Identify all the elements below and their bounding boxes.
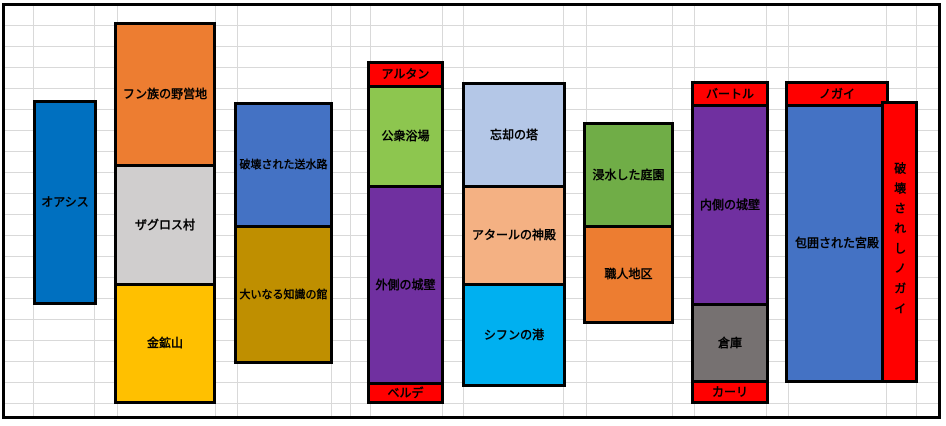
block-label-kari: カーリ: [712, 385, 748, 399]
block-label-zagros-village: ザグロス村: [135, 218, 195, 232]
block-label-gold-mine: 金鉱山: [147, 336, 183, 350]
block-label-oasis: オアシス: [41, 195, 89, 209]
block-label-temple-of-atar: アタールの神殿: [472, 228, 556, 242]
block-hun-camp[interactable]: フン族の野営地: [117, 25, 213, 164]
block-label-nogai: ノガイ: [819, 87, 855, 101]
block-label-house-of-great-knowledge: 大いなる知識の館: [240, 288, 328, 301]
block-berde[interactable]: ベルデ: [370, 382, 441, 401]
block-tower-of-oblivion[interactable]: 忘却の塔: [465, 85, 563, 185]
block-port-of-sifun[interactable]: シフンの港: [465, 283, 563, 384]
block-oasis[interactable]: オアシス: [36, 103, 94, 302]
block-label-bartol: バートル: [706, 87, 754, 101]
block-inner-wall[interactable]: 内側の城壁: [694, 104, 766, 303]
block-destroyed-aqueduct[interactable]: 破壊された送水路: [237, 105, 330, 225]
block-label-inner-wall: 内側の城壁: [700, 198, 760, 212]
block-besieged-palace[interactable]: 包囲された宮殿: [788, 104, 886, 380]
column-garden-artisan: 浸水した庭園職人地区: [583, 122, 674, 324]
block-public-baths[interactable]: 公衆浴場: [370, 85, 441, 185]
column-oasis: オアシス: [33, 100, 97, 305]
block-artisan-district[interactable]: 職人地区: [586, 225, 671, 321]
block-zagros-village[interactable]: ザグロス村: [117, 164, 213, 283]
block-label-outer-wall: 外側の城壁: [375, 278, 435, 292]
column-bartol-stack: バートル内側の城壁倉庫カーリ: [691, 81, 769, 404]
block-temple-of-atar[interactable]: アタールの神殿: [465, 185, 563, 283]
block-label-flooded-gardens: 浸水した庭園: [592, 168, 664, 182]
block-label-berde: ベルデ: [387, 386, 423, 400]
block-house-of-great-knowledge[interactable]: 大いなる知識の館: [237, 225, 330, 361]
column-aqueduct-knowledge: 破壊された送水路大いなる知識の館: [234, 102, 333, 364]
column-destroyed-nogai-strip: 破壊されしノガイ: [881, 101, 918, 383]
block-label-destroyed-aqueduct: 破壊された送水路: [240, 158, 328, 171]
block-outer-wall[interactable]: 外側の城壁: [370, 185, 441, 382]
block-label-public-baths: 公衆浴場: [381, 129, 429, 143]
block-label-altan: アルタン: [382, 67, 430, 81]
block-label-tower-of-oblivion: 忘却の塔: [490, 128, 538, 142]
spreadsheet-canvas: オアシスフン族の野営地ザグロス村金鉱山破壊された送水路大いなる知識の館アルタン公…: [0, 0, 946, 426]
block-label-port-of-sifun: シフンの港: [484, 328, 544, 342]
block-label-artisan-district: 職人地区: [604, 267, 652, 281]
block-warehouse[interactable]: 倉庫: [694, 303, 766, 380]
column-hun-zagros-goldmine: フン族の野営地ザグロス村金鉱山: [114, 22, 216, 404]
block-gold-mine[interactable]: 金鉱山: [117, 283, 213, 401]
block-label-warehouse: 倉庫: [718, 336, 742, 350]
column-tower-temple-port: 忘却の塔アタールの神殿シフンの港: [462, 82, 566, 387]
block-destroyed-nogai[interactable]: 破壊されしノガイ: [884, 104, 915, 380]
block-altan[interactable]: アルタン: [370, 64, 441, 85]
gridline-vertical: [350, 6, 351, 418]
block-label-hun-camp: フン族の野営地: [123, 87, 207, 101]
block-label-besieged-palace: 包囲された宮殿: [795, 236, 879, 250]
column-nogai-stack: ノガイ包囲された宮殿: [785, 81, 889, 383]
block-label-destroyed-nogai: 破壊されしノガイ: [892, 162, 906, 322]
column-altan-stack: アルタン公衆浴場外側の城壁ベルデ: [367, 61, 444, 404]
block-nogai[interactable]: ノガイ: [788, 84, 886, 104]
block-bartol[interactable]: バートル: [694, 84, 766, 104]
block-kari[interactable]: カーリ: [694, 380, 766, 401]
block-flooded-gardens[interactable]: 浸水した庭園: [586, 125, 671, 225]
